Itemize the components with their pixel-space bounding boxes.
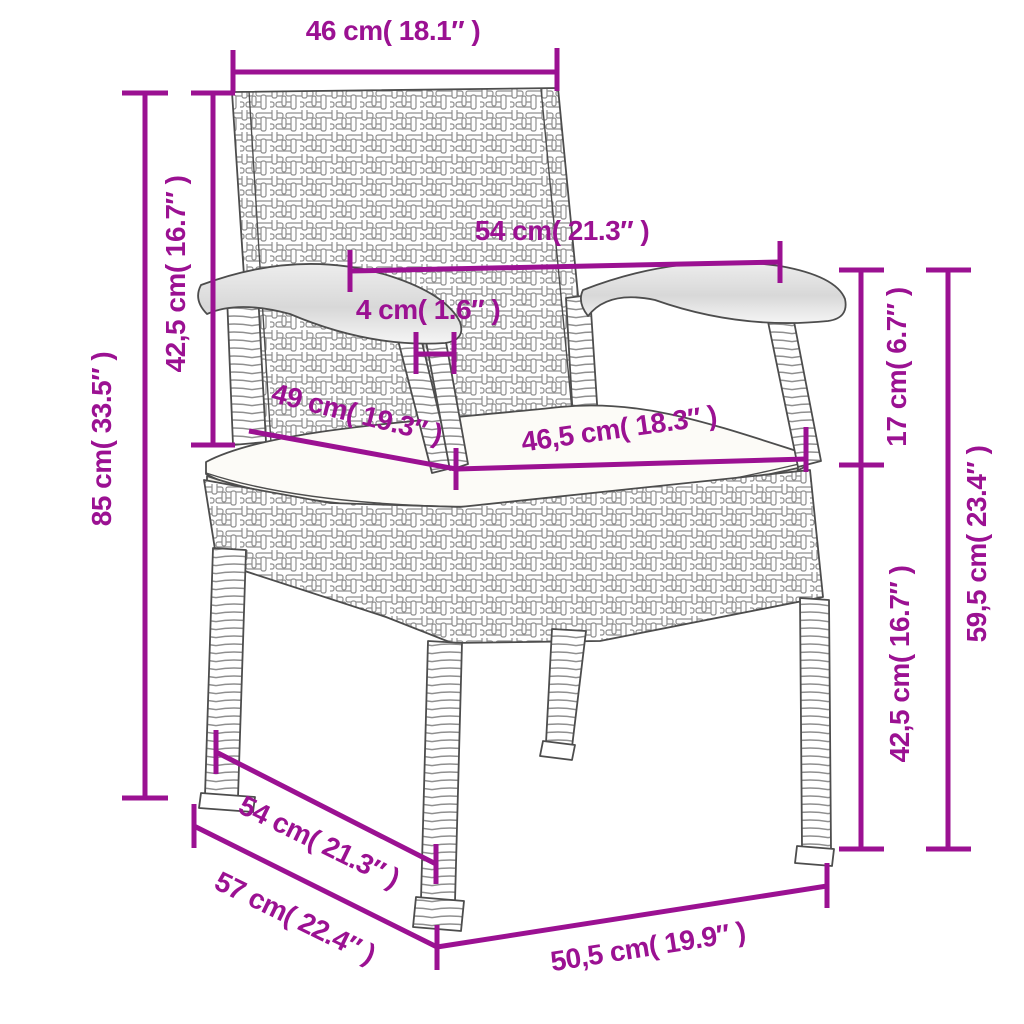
dim-label-armrest-thickness: 4 cm( 1.6″ ) — [356, 294, 500, 326]
dim-label-seat-height: 42,5 cm( 16.7″ ) — [884, 566, 916, 763]
dim-label-armrest-span: 54 cm( 21.3″ ) — [475, 215, 650, 247]
dimension-diagram: 46 cm( 18.1″ ) 42,5 cm( 16.7″ ) 85 cm( 3… — [0, 0, 1024, 1024]
dim-label-backrest-height: 42,5 cm( 16.7″ ) — [160, 176, 192, 373]
dim-label-total-height: 85 cm( 33.5″ ) — [86, 352, 118, 527]
dim-armrest-above-seat-and-seat-height — [839, 270, 884, 849]
dim-label-armrest-above-seat: 17 cm( 6.7″ ) — [881, 287, 913, 446]
leg-front-right — [800, 598, 831, 850]
dim-label-backrest-width: 46 cm( 18.1″ ) — [306, 15, 481, 47]
dim-backrest-height — [191, 93, 235, 445]
dim-backrest-width — [233, 48, 557, 93]
foot-back-right — [540, 741, 575, 760]
chair-illustration — [0, 0, 1024, 1024]
leg-back-left — [205, 548, 246, 797]
leg-back-right — [546, 629, 586, 747]
dim-label-armrest-height: 59,5 cm( 23.4″ ) — [961, 446, 993, 643]
armrest-right — [581, 262, 846, 323]
